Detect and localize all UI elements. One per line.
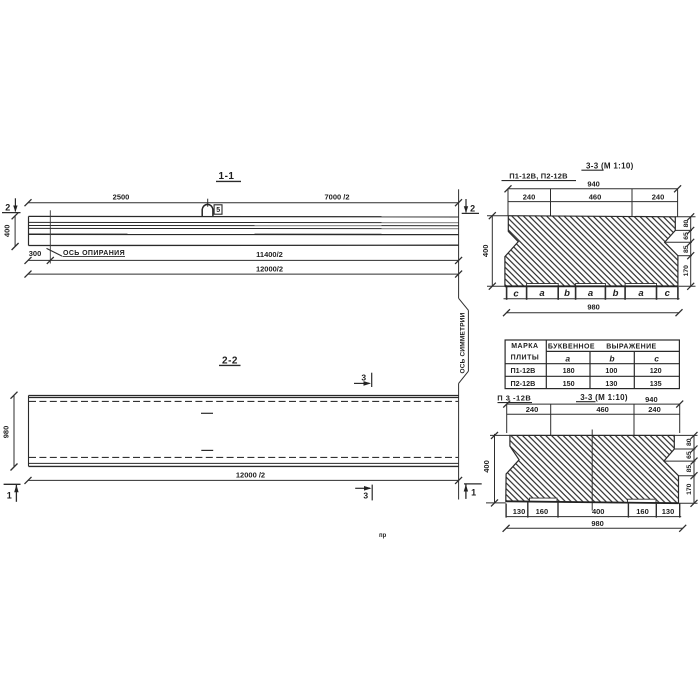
svg-text:130: 130 [605,379,617,388]
svg-text:b: b [609,353,614,363]
svg-text:240: 240 [652,192,665,201]
svg-text:2: 2 [5,202,10,212]
svg-text:150: 150 [563,379,575,388]
svg-text:80: 80 [683,220,690,228]
svg-text:c: c [654,353,659,363]
svg-text:160: 160 [636,507,649,516]
svg-text:100: 100 [605,366,617,375]
svg-text:300: 300 [29,249,42,258]
svg-text:ВЫРАЖЕНИЕ: ВЫРАЖЕНИЕ [606,343,656,350]
svg-text:БУКВЕННОЕ: БУКВЕННОЕ [548,343,595,350]
svg-text:65: 65 [683,232,690,240]
svg-text:170: 170 [683,265,690,277]
svg-text:180: 180 [563,366,575,375]
svg-text:3: 3 [361,372,366,382]
svg-text:130: 130 [513,507,526,516]
svg-text:65: 65 [686,451,693,459]
svg-text:П 3 -12В: П 3 -12В [497,393,531,402]
svg-text:3: 3 [363,490,368,500]
svg-text:3-3 (М 1:10): 3-3 (М 1:10) [586,161,634,170]
svg-text:ОСЬ ОПИРАНИЯ: ОСЬ ОПИРАНИЯ [63,250,125,257]
svg-text:пр: пр [379,533,387,539]
svg-text:3-3 (М 1:10): 3-3 (М 1:10) [580,393,628,402]
svg-text:1-1: 1-1 [219,171,235,182]
svg-text:80: 80 [686,438,693,446]
svg-text:2500: 2500 [113,192,130,201]
svg-text:170: 170 [686,483,693,495]
svg-text:400: 400 [482,460,491,473]
svg-text:160: 160 [536,507,549,516]
svg-text:1: 1 [7,490,12,500]
svg-text:a: a [539,288,544,299]
svg-text:П2-12В: П2-12В [511,379,536,388]
svg-text:120: 120 [650,366,662,375]
svg-text:400: 400 [592,507,605,516]
svg-text:П1-12В: П1-12В [511,366,536,375]
svg-text:240: 240 [523,192,536,201]
svg-text:c: c [513,289,519,300]
svg-text:240: 240 [648,405,661,414]
svg-text:980: 980 [587,303,600,312]
svg-text:2: 2 [470,204,475,214]
svg-text:12000 /2: 12000 /2 [236,470,265,479]
svg-text:460: 460 [589,192,602,201]
svg-text:П1-12В, П2-12В: П1-12В, П2-12В [509,172,568,181]
svg-text:2-2: 2-2 [222,355,238,366]
svg-text:400: 400 [3,225,12,238]
svg-text:980: 980 [591,519,604,528]
svg-text:МАРКА: МАРКА [511,343,538,350]
svg-text:85: 85 [683,245,690,253]
svg-text:940: 940 [645,395,658,404]
svg-text:1: 1 [471,488,476,498]
svg-text:130: 130 [662,507,675,516]
svg-text:980: 980 [1,426,10,439]
svg-text:b: b [564,288,570,299]
svg-text:a: a [565,353,570,363]
svg-text:85: 85 [686,465,693,473]
svg-text:b: b [613,288,619,299]
svg-text:11400/2: 11400/2 [256,250,283,259]
svg-text:460: 460 [596,405,609,414]
svg-text:400: 400 [481,245,490,258]
svg-text:a: a [638,288,643,299]
svg-text:ОСЬ СИММЕТРИИ: ОСЬ СИММЕТРИИ [459,312,466,373]
svg-text:940: 940 [587,180,600,189]
svg-text:12000/2: 12000/2 [256,265,283,274]
svg-text:7000 /2: 7000 /2 [324,192,349,201]
svg-text:240: 240 [526,405,539,414]
svg-text:135: 135 [650,379,662,388]
svg-text:a: a [588,288,593,299]
svg-text:c: c [665,288,671,299]
svg-text:5: 5 [216,207,220,214]
svg-text:ПЛИТЫ: ПЛИТЫ [511,355,540,362]
